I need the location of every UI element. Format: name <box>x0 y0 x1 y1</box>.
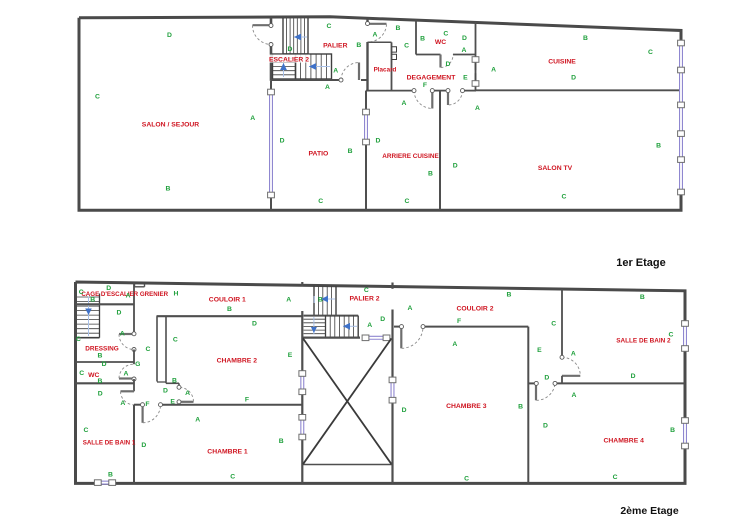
svg-text:C: C <box>318 198 323 205</box>
svg-text:D: D <box>288 46 293 53</box>
svg-text:SALLE DE BAIN 1: SALLE DE BAIN 1 <box>83 440 136 447</box>
svg-text:A: A <box>408 305 413 312</box>
svg-text:A: A <box>491 67 496 74</box>
svg-text:Placard: Placard <box>374 66 397 73</box>
svg-text:C: C <box>404 42 409 49</box>
svg-text:B: B <box>279 438 284 445</box>
svg-text:D: D <box>543 422 548 429</box>
svg-text:D: D <box>98 391 103 398</box>
svg-text:B: B <box>396 25 401 32</box>
svg-text:B: B <box>318 297 323 304</box>
svg-text:PALIER 2: PALIER 2 <box>349 296 379 303</box>
svg-text:F: F <box>145 401 149 408</box>
svg-text:D: D <box>631 373 636 380</box>
svg-text:A: A <box>123 371 128 378</box>
svg-text:DRESSING: DRESSING <box>85 345 118 352</box>
svg-text:CHAMBRE 2: CHAMBRE 2 <box>217 357 258 364</box>
svg-text:B: B <box>583 35 588 42</box>
svg-text:A: A <box>120 400 125 407</box>
svg-text:D: D <box>280 138 285 145</box>
svg-text:A: A <box>402 100 407 107</box>
svg-text:D: D <box>544 375 549 382</box>
svg-text:C: C <box>561 194 566 201</box>
svg-text:SALON / SEJOUR: SALON / SEJOUR <box>142 122 199 129</box>
svg-text:B: B <box>348 148 353 155</box>
svg-text:A: A <box>367 322 372 329</box>
svg-text:A: A <box>286 297 291 304</box>
svg-text:COULOIR 1: COULOIR 1 <box>209 297 246 304</box>
svg-text:D: D <box>106 285 111 292</box>
svg-text:C: C <box>95 93 100 100</box>
svg-text:A: A <box>572 392 577 399</box>
svg-text:C: C <box>464 476 469 483</box>
svg-text:D: D <box>252 321 257 328</box>
svg-text:F: F <box>245 397 249 404</box>
svg-text:B: B <box>172 377 177 384</box>
svg-text:WC: WC <box>435 39 446 46</box>
svg-text:D: D <box>380 316 385 323</box>
svg-text:A: A <box>126 293 131 300</box>
svg-text:B: B <box>356 42 361 49</box>
svg-text:D: D <box>402 407 407 414</box>
svg-text:B: B <box>507 291 512 298</box>
svg-text:F: F <box>457 318 461 325</box>
svg-text:B: B <box>428 171 433 178</box>
svg-text:A: A <box>452 341 457 348</box>
svg-text:B: B <box>166 185 171 192</box>
svg-text:B: B <box>97 353 102 360</box>
svg-text:ESCALIER 2: ESCALIER 2 <box>269 57 309 64</box>
svg-text:C: C <box>145 346 150 353</box>
svg-text:B: B <box>227 306 232 313</box>
svg-text:D: D <box>571 75 576 82</box>
svg-text:D: D <box>446 61 451 68</box>
svg-text:COULOIR 2: COULOIR 2 <box>456 306 493 313</box>
svg-text:C: C <box>648 49 653 56</box>
svg-text:A: A <box>475 105 480 112</box>
svg-text:C: C <box>404 198 409 205</box>
svg-text:B: B <box>670 427 675 434</box>
svg-text:A: A <box>195 416 200 423</box>
svg-text:E: E <box>537 347 542 354</box>
svg-text:B: B <box>420 36 425 43</box>
svg-text:E: E <box>170 399 175 406</box>
svg-text:PATIO: PATIO <box>309 150 329 157</box>
svg-text:1er Etage: 1er Etage <box>616 257 666 269</box>
svg-text:CHAMBRE 3: CHAMBRE 3 <box>446 403 487 410</box>
svg-text:E: E <box>463 75 468 82</box>
svg-text:2ème Etage: 2ème Etage <box>620 505 679 517</box>
svg-text:A: A <box>120 331 125 338</box>
svg-text:D: D <box>102 361 107 368</box>
svg-text:D: D <box>376 137 381 144</box>
svg-text:CHAMBRE 1: CHAMBRE 1 <box>207 448 248 455</box>
svg-text:A: A <box>325 84 330 91</box>
svg-text:B: B <box>656 143 661 150</box>
svg-text:D: D <box>163 388 168 395</box>
svg-text:A: A <box>185 390 190 397</box>
svg-text:C: C <box>668 331 673 338</box>
svg-text:D: D <box>141 442 146 449</box>
svg-text:B: B <box>640 294 645 301</box>
svg-text:SALON TV: SALON TV <box>538 165 573 172</box>
svg-text:C: C <box>327 23 332 30</box>
svg-text:C: C <box>613 474 618 481</box>
svg-text:PALIER: PALIER <box>323 42 348 49</box>
svg-text:B: B <box>518 404 523 411</box>
svg-text:CUISINE: CUISINE <box>548 59 576 66</box>
svg-text:B: B <box>98 378 103 385</box>
svg-text:C: C <box>79 370 84 377</box>
svg-text:A: A <box>373 32 378 39</box>
svg-text:C: C <box>83 427 88 434</box>
svg-text:ARRIERE CUISINE: ARRIERE CUISINE <box>382 153 439 160</box>
svg-text:D: D <box>167 32 172 39</box>
svg-text:C: C <box>443 31 448 38</box>
svg-text:A: A <box>462 47 467 54</box>
svg-text:C: C <box>76 336 81 343</box>
svg-text:SALLE DE BAIN 2: SALLE DE BAIN 2 <box>616 338 671 345</box>
svg-text:D: D <box>462 35 467 42</box>
svg-text:F: F <box>423 82 427 89</box>
svg-text:C: C <box>173 337 178 344</box>
svg-text:C: C <box>79 289 84 296</box>
svg-text:B: B <box>90 296 95 303</box>
svg-text:B: B <box>108 472 113 479</box>
svg-text:CHAMBRE 4: CHAMBRE 4 <box>603 437 644 444</box>
svg-text:G: G <box>135 361 140 368</box>
svg-text:A: A <box>250 115 255 122</box>
svg-text:A: A <box>571 350 576 357</box>
svg-text:D: D <box>453 162 458 169</box>
svg-text:D: D <box>117 309 122 316</box>
svg-text:C: C <box>551 321 556 328</box>
svg-text:E: E <box>288 352 293 359</box>
svg-text:A: A <box>333 67 338 74</box>
svg-text:H: H <box>173 291 178 298</box>
svg-text:DEGAGEMENT: DEGAGEMENT <box>407 74 457 81</box>
svg-text:C: C <box>364 287 369 294</box>
svg-text:C: C <box>230 474 235 481</box>
